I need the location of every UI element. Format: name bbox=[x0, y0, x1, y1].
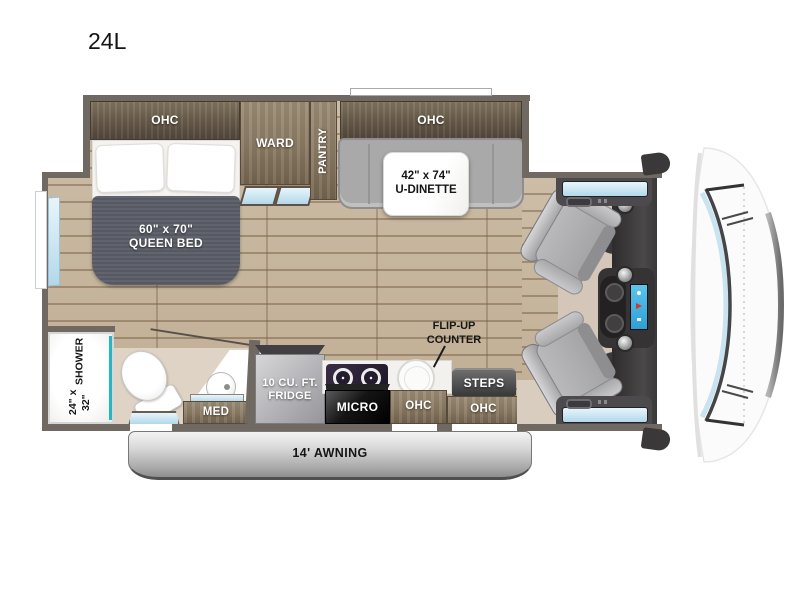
flip-up-line1: FLIP-UP bbox=[413, 320, 495, 334]
entry-overhead-cabinet: OHC bbox=[447, 396, 520, 424]
flip-up-counter-inner-ring bbox=[404, 366, 430, 392]
bedroom-window-frame bbox=[35, 191, 47, 289]
bed-size-label: 60" x 70" bbox=[92, 222, 240, 236]
micro-label: MICRO bbox=[337, 400, 379, 414]
fridge-size-label: 10 CU. FT. bbox=[256, 377, 324, 390]
queen-bed: 60" x 70" QUEEN BED bbox=[92, 196, 240, 285]
side-mirror-top bbox=[641, 151, 672, 176]
awning: 14' AWNING bbox=[128, 431, 532, 480]
bed-name-label: QUEEN BED bbox=[92, 236, 240, 250]
faucet bbox=[224, 384, 230, 390]
wall-jog-left bbox=[42, 172, 90, 178]
cab-door-bottom-window bbox=[562, 407, 648, 423]
cushion-seam-left bbox=[368, 144, 370, 204]
awning-label: 14' AWNING bbox=[129, 446, 531, 462]
dinette-ohc-label: OHC bbox=[417, 113, 445, 127]
cab-door-bottom bbox=[556, 396, 652, 424]
rv-front-cap bbox=[686, 143, 798, 467]
dinette-name-label: U-DINETTE bbox=[384, 183, 468, 197]
wall-dinette-right bbox=[522, 95, 529, 178]
shower-name-label: SHOWER bbox=[73, 338, 86, 385]
door-handle bbox=[566, 399, 592, 409]
dinette-overhead-cabinet: OHC bbox=[340, 101, 522, 140]
screen-icon-dot1 bbox=[637, 291, 641, 295]
dinette-table: 42" x 74" U-DINETTE bbox=[383, 152, 469, 216]
door-handle bbox=[566, 197, 592, 207]
door-dot bbox=[598, 400, 601, 404]
bedroom-overhead-cabinet: OHC bbox=[90, 101, 240, 140]
shower: 24" x 32" SHOWER bbox=[48, 332, 114, 424]
fridge: 10 CU. FT. FRIDGE bbox=[255, 354, 325, 424]
wardrobe-label: WARD bbox=[256, 136, 294, 150]
entry-ohc-label: OHC bbox=[470, 403, 496, 417]
microwave: MICRO bbox=[325, 390, 390, 424]
flip-up-counter-callout: FLIP-UP COUNTER bbox=[413, 320, 495, 348]
door-dot bbox=[598, 199, 601, 203]
wardrobe: WARD bbox=[240, 101, 310, 185]
fridge-name-label: FRIDGE bbox=[256, 390, 324, 403]
entry-door-opening bbox=[452, 424, 517, 431]
screen-icon-dot2 bbox=[637, 318, 641, 321]
bed-pillow-right bbox=[166, 143, 236, 193]
steering-knob-bottom bbox=[605, 314, 624, 333]
window-opening-galley bbox=[392, 424, 437, 431]
infotainment-screen bbox=[630, 284, 648, 330]
cushion-seam-right bbox=[492, 144, 494, 204]
bed-pillow-left bbox=[95, 143, 165, 193]
exterior-mask-left bbox=[42, 80, 83, 172]
wardrobe-glass-door-right bbox=[274, 186, 315, 206]
screen-icon-red bbox=[636, 303, 642, 309]
pantry: PANTRY bbox=[310, 101, 337, 200]
medicine-cabinet: MED bbox=[183, 401, 249, 424]
slideout-roof-strip bbox=[350, 88, 492, 96]
shower-size-label: 24" x 32" bbox=[67, 385, 93, 420]
page-title: 24L bbox=[88, 28, 126, 55]
flip-up-line2: COUNTER bbox=[413, 334, 495, 348]
door-dot bbox=[604, 199, 607, 203]
dinette-size-label: 42" x 74" bbox=[384, 169, 468, 183]
wall-shower-top bbox=[42, 326, 115, 332]
cab-door-top-window bbox=[562, 181, 648, 197]
pantry-label: PANTRY bbox=[317, 128, 330, 174]
bedroom-window-glass bbox=[48, 197, 60, 287]
bedroom-ohc-label: OHC bbox=[151, 113, 179, 127]
side-mirror-bottom bbox=[641, 427, 672, 452]
kitchen-ohc-label: OHC bbox=[405, 400, 431, 414]
cab-door-top bbox=[556, 178, 652, 206]
wall-bed-slide-left bbox=[83, 95, 90, 178]
window-opening-bedroom bbox=[130, 424, 172, 431]
floorplan-canvas: 24L OHC 60" x 70" QUEEN BED WARD PANTRY … bbox=[0, 0, 800, 600]
steps-label: STEPS bbox=[464, 376, 505, 390]
entry-steps: STEPS bbox=[452, 368, 516, 396]
steering-knob-top bbox=[605, 283, 624, 302]
dash-speaker-2 bbox=[616, 266, 634, 284]
door-dot bbox=[604, 400, 607, 404]
med-label: MED bbox=[203, 406, 229, 420]
dash-speaker-3 bbox=[616, 334, 634, 352]
steering-column bbox=[600, 276, 626, 338]
kitchen-overhead-cabinet: OHC bbox=[390, 390, 447, 424]
